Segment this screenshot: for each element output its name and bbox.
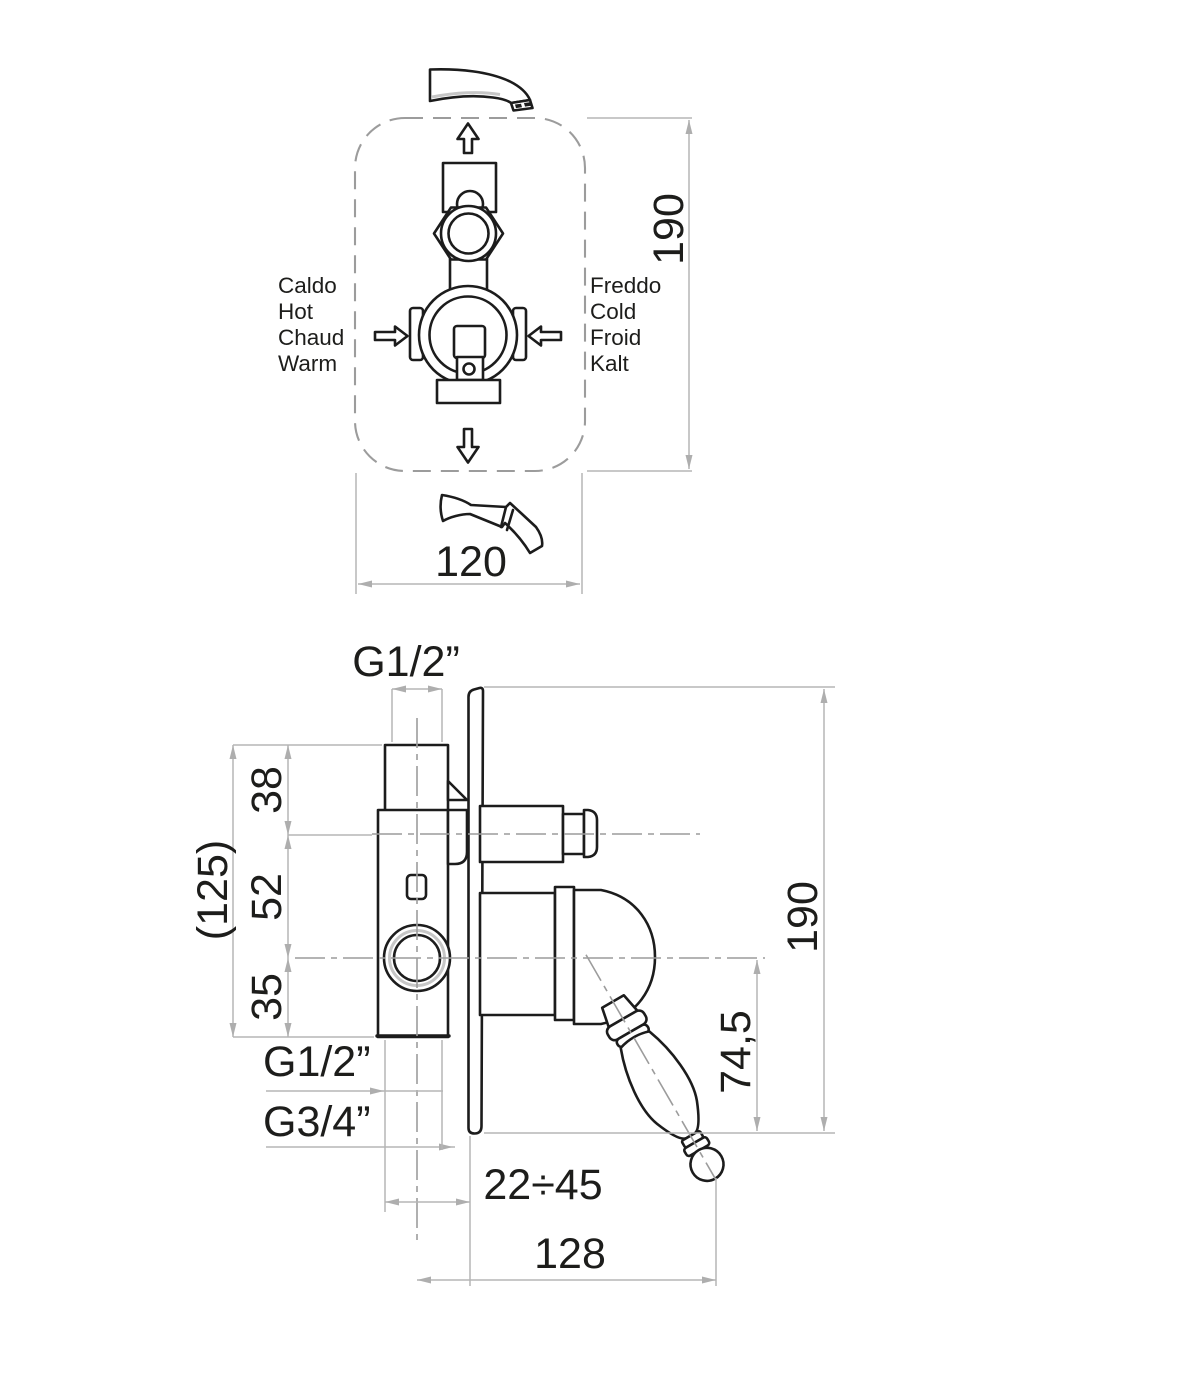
dim-128-label: 128 xyxy=(534,1230,606,1278)
dim-125-label: (125) xyxy=(189,840,237,940)
arrowhead xyxy=(702,1277,716,1284)
dim-190-label: 190 xyxy=(645,193,693,265)
arrowhead xyxy=(230,745,237,759)
hot-side-label: Caldo Hot Chaud Warm xyxy=(278,273,344,376)
dim-depth-range-label: 22÷45 xyxy=(483,1161,602,1209)
cold-label-line: Kalt xyxy=(590,351,630,376)
cold-side-label: Freddo Cold Froid Kalt xyxy=(590,273,661,376)
hot-label-line: Chaud xyxy=(278,325,344,350)
dim-side-thread-label: G3/4” xyxy=(263,1098,371,1146)
dim-38-label: 38 xyxy=(243,766,291,814)
top-view: 190 120 Caldo Hot Chaud Warm Freddo Cold… xyxy=(278,69,693,594)
arrowhead xyxy=(821,1117,828,1131)
cartridge-lower-block xyxy=(457,357,483,380)
arrowhead xyxy=(358,581,372,588)
chamfer xyxy=(448,781,467,800)
arrowhead xyxy=(285,1023,292,1037)
faucet-technical-drawing: 190 120 Caldo Hot Chaud Warm Freddo Cold… xyxy=(0,0,1184,1385)
arrowhead xyxy=(686,455,693,469)
cold-label-line: Cold xyxy=(590,299,636,324)
top-outlet-pipe xyxy=(443,163,496,212)
arrowhead xyxy=(821,689,828,703)
arrow-up-icon xyxy=(458,124,479,154)
arrowhead xyxy=(285,958,292,972)
bath-spout-icon xyxy=(430,69,533,110)
valve-body-side xyxy=(377,688,740,1194)
hot-label-line: Hot xyxy=(278,299,314,324)
side-view: G1/2” (125) 38 52 35 190 xyxy=(189,638,835,1286)
cartridge-stem-square xyxy=(454,326,485,358)
dim-35-label: 35 xyxy=(243,973,291,1021)
right-boss xyxy=(448,810,467,864)
cold-label-line: Froid xyxy=(590,325,641,350)
hot-label-line: Warm xyxy=(278,351,337,376)
arrowhead xyxy=(754,960,761,974)
technical-drawing-page: 190 120 Caldo Hot Chaud Warm Freddo Cold… xyxy=(0,0,1184,1385)
dim-52-label: 52 xyxy=(243,873,291,921)
arrow-hot-inlet-icon xyxy=(375,327,408,346)
valve-body-front xyxy=(410,163,526,403)
arrowhead xyxy=(285,835,292,849)
dim-74-5-label: 74,5 xyxy=(712,1010,760,1094)
main-body xyxy=(378,810,448,1037)
arrowhead xyxy=(285,821,292,835)
spout-outline xyxy=(430,69,530,103)
dim-190-side-label: 190 xyxy=(779,881,827,953)
arrowhead xyxy=(285,944,292,958)
arrowhead xyxy=(686,120,693,134)
cold-label-line: Freddo xyxy=(590,273,661,298)
arrowhead xyxy=(417,1277,431,1284)
arrowhead xyxy=(230,1023,237,1037)
bottom-outlet-block xyxy=(437,380,500,403)
dim-bottom-thread-label: G1/2” xyxy=(263,1038,371,1086)
arrowhead xyxy=(285,745,292,759)
arrowhead xyxy=(385,1199,399,1206)
dim-120-label: 120 xyxy=(435,538,507,586)
arrowhead xyxy=(456,1199,470,1206)
arrowhead xyxy=(754,1117,761,1131)
handle-collar xyxy=(555,887,574,1020)
arrowhead xyxy=(566,581,580,588)
arrow-down-icon xyxy=(458,429,479,463)
handle-housing xyxy=(480,893,555,1015)
arrowhead xyxy=(392,686,406,693)
hot-label-line: Caldo xyxy=(278,273,337,298)
arrowhead xyxy=(370,1088,384,1095)
arrowhead xyxy=(439,1144,453,1151)
arrow-cold-inlet-icon xyxy=(529,327,562,346)
arrowhead xyxy=(428,686,442,693)
dim-top-thread-label: G1/2” xyxy=(352,638,460,686)
